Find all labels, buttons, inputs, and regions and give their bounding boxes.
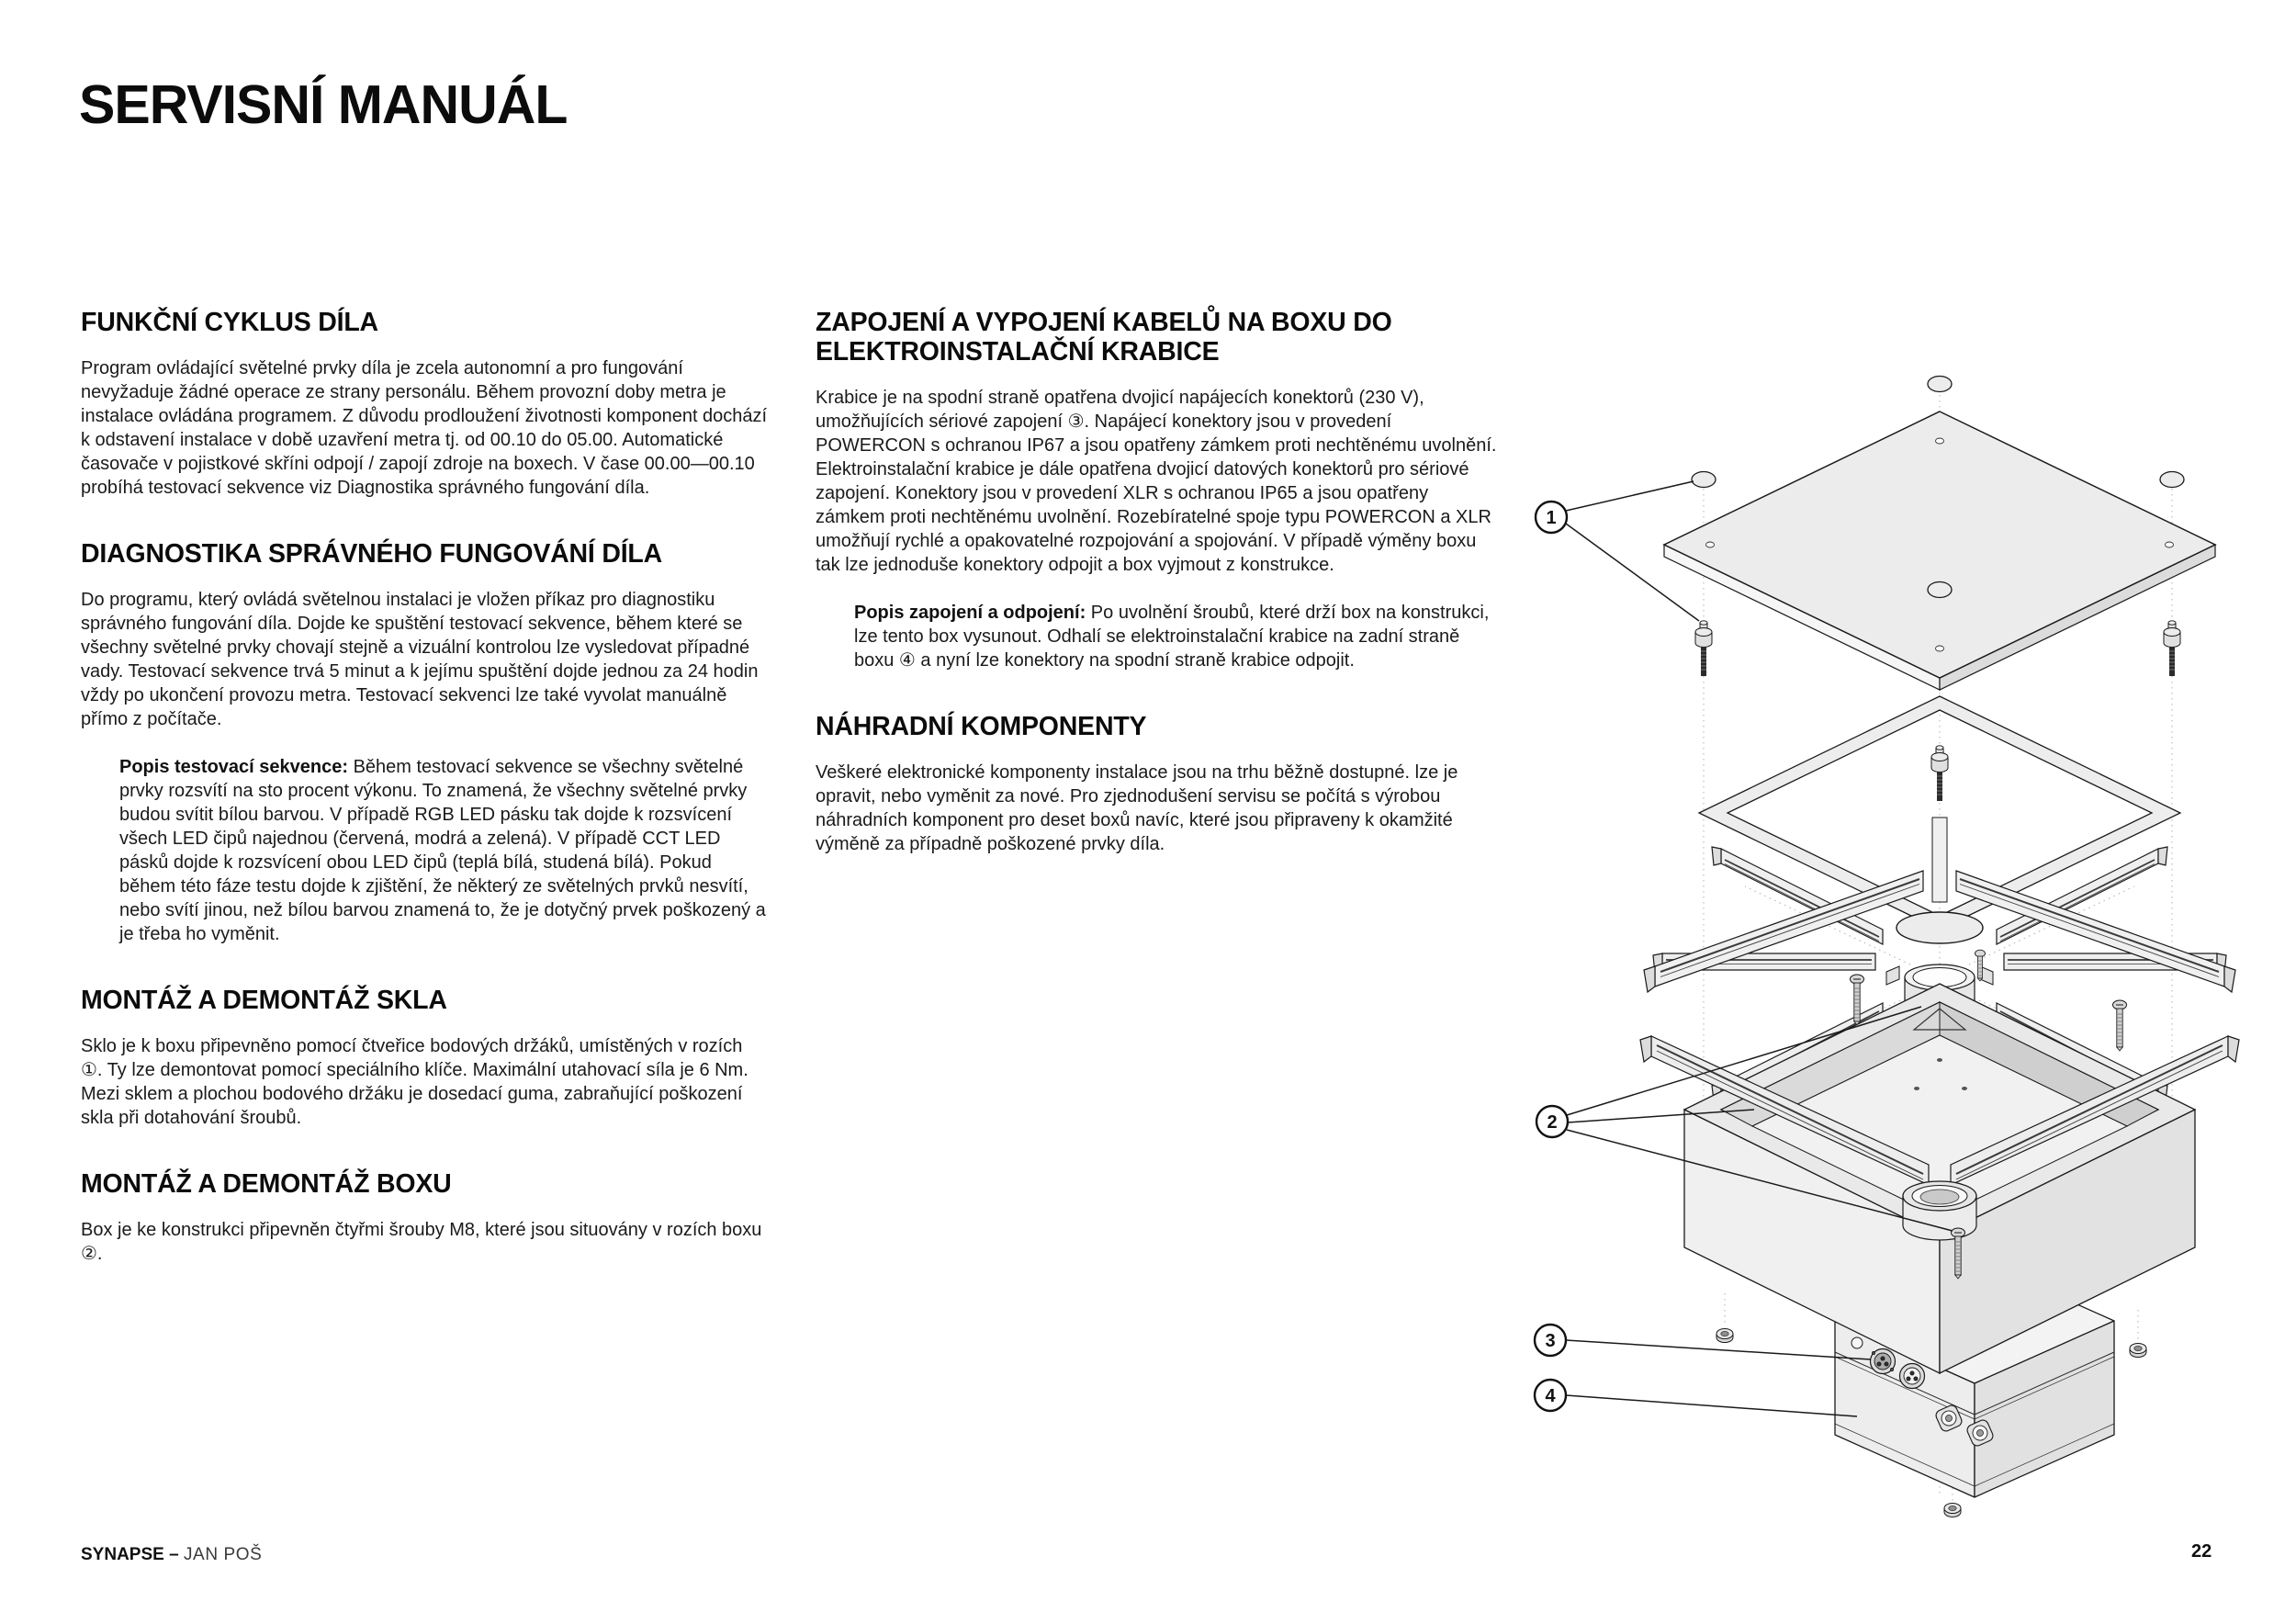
floor-collar — [1903, 1181, 1976, 1240]
paragraph-text: Veškeré elektronické komponenty instalac… — [816, 762, 1458, 854]
page-number: 22 — [2191, 1541, 2212, 1562]
paragraph-text: Program ovládající světelné prvky díla j… — [81, 358, 767, 498]
assembly-screw — [2113, 1000, 2127, 1051]
exploded-diagram-svg: 1 2 3 4 — [1515, 358, 2296, 1534]
paragraph: Veškeré elektronické komponenty instalac… — [816, 761, 1503, 856]
xlr-connector-1 — [1871, 1349, 1896, 1374]
footer-brand: SYNAPSE — [81, 1545, 164, 1564]
callout-3: 3 — [1535, 1325, 1871, 1359]
paragraph-text: Sklo je k boxu připevněno pomocí čtveřic… — [81, 1036, 748, 1128]
section-diagnostika: DIAGNOSTIKA SPRÁVNÉHO FUNGOVÁNÍ DÍLA Do … — [81, 540, 768, 946]
paragraph: Sklo je k boxu připevněno pomocí čtveřic… — [81, 1034, 768, 1130]
paragraph-text: Během testovací sekvence se všechny svět… — [119, 757, 766, 944]
corner-cap — [2160, 472, 2184, 488]
section-heading: ZAPOJENÍ A VYPOJENÍ KABELŮ NA BOXU DO EL… — [816, 309, 1503, 367]
section-heading: FUNKČNÍ CYKLUS DÍLA — [81, 309, 768, 338]
section-nahradni-komponenty: NÁHRADNÍ KOMPONENTY Veškeré elektronické… — [816, 713, 1503, 856]
paragraph-indented: Popis zapojení a odpojení: Po uvolnění š… — [854, 601, 1503, 672]
paragraph-text: Do programu, který ovládá světelnou inst… — [81, 590, 758, 729]
callout-2-label: 2 — [1547, 1112, 1557, 1133]
hex-nut — [1716, 1329, 1733, 1343]
section-funkcni-cyklus: FUNKČNÍ CYKLUS DÍLA Program ovládající s… — [81, 309, 768, 500]
paragraph-indented: Popis testovací sekvence: Během testovac… — [119, 755, 768, 946]
hub-disc — [1896, 912, 1983, 943]
corner-cap — [1692, 472, 1716, 488]
paragraph-text: Box je ke konstrukci připevněn čtyřmi šr… — [81, 1220, 761, 1264]
corner-cap — [1928, 582, 1952, 598]
hex-nut — [1944, 1504, 1961, 1517]
section-montaz-boxu: MONTÁŽ A DEMONTÁŽ BOXU Box je ke konstru… — [81, 1170, 768, 1266]
paragraph: Box je ke konstrukci připevněn čtyřmi šr… — [81, 1218, 768, 1266]
cable-hole — [1851, 1337, 1863, 1348]
paragraph: Do programu, který ovládá světelnou inst… — [81, 588, 768, 731]
callout-4-label: 4 — [1545, 1386, 1556, 1406]
point-holder — [1695, 621, 1712, 676]
paragraph-lead: Popis zapojení a odpojení: — [854, 603, 1086, 623]
footer: SYNAPSE – JAN POŠ — [81, 1545, 262, 1565]
point-holder — [2164, 621, 2180, 676]
paragraph: Program ovládající světelné prvky díla j… — [81, 356, 768, 500]
footer-dash: – — [169, 1545, 179, 1564]
exploded-diagram: 1 2 3 4 — [1515, 358, 2296, 1534]
section-montaz-skla: MONTÁŽ A DEMONTÁŽ SKLA Sklo je k boxu př… — [81, 987, 768, 1130]
section-heading: DIAGNOSTIKA SPRÁVNÉHO FUNGOVÁNÍ DÍLA — [81, 540, 768, 570]
section-heading: MONTÁŽ A DEMONTÁŽ BOXU — [81, 1170, 768, 1200]
middle-column: ZAPOJENÍ A VYPOJENÍ KABELŮ NA BOXU DO EL… — [816, 309, 1503, 880]
manual-page: { "page": { "title": "SERVISNÍ MANUÁL", … — [0, 0, 2296, 1624]
point-holder — [1931, 746, 1948, 801]
footer-author: JAN POŠ — [184, 1545, 263, 1564]
paragraph: Krabice je na spodní straně opatřena dvo… — [816, 386, 1503, 577]
xlr-connector-2 — [1900, 1364, 1925, 1389]
page-title: SERVISNÍ MANUÁL — [79, 73, 567, 136]
vertical-profile — [1932, 818, 1947, 902]
hex-nut — [2130, 1344, 2146, 1358]
corner-cap — [1928, 377, 1952, 392]
paragraph-text: Krabice je na spodní straně opatřena dvo… — [816, 388, 1496, 575]
callout-3-label: 3 — [1545, 1331, 1555, 1351]
section-heading: NÁHRADNÍ KOMPONENTY — [816, 713, 1503, 742]
paragraph-lead: Popis testovací sekvence: — [119, 757, 348, 777]
left-column: FUNKČNÍ CYKLUS DÍLA Program ovládající s… — [81, 309, 768, 1290]
section-zapojeni-kabelu: ZAPOJENÍ A VYPOJENÍ KABELŮ NA BOXU DO EL… — [816, 309, 1503, 672]
callout-4: 4 — [1535, 1380, 1857, 1416]
glass-plate — [1664, 412, 2215, 690]
section-heading: MONTÁŽ A DEMONTÁŽ SKLA — [81, 987, 768, 1016]
callout-1-label: 1 — [1546, 508, 1556, 528]
